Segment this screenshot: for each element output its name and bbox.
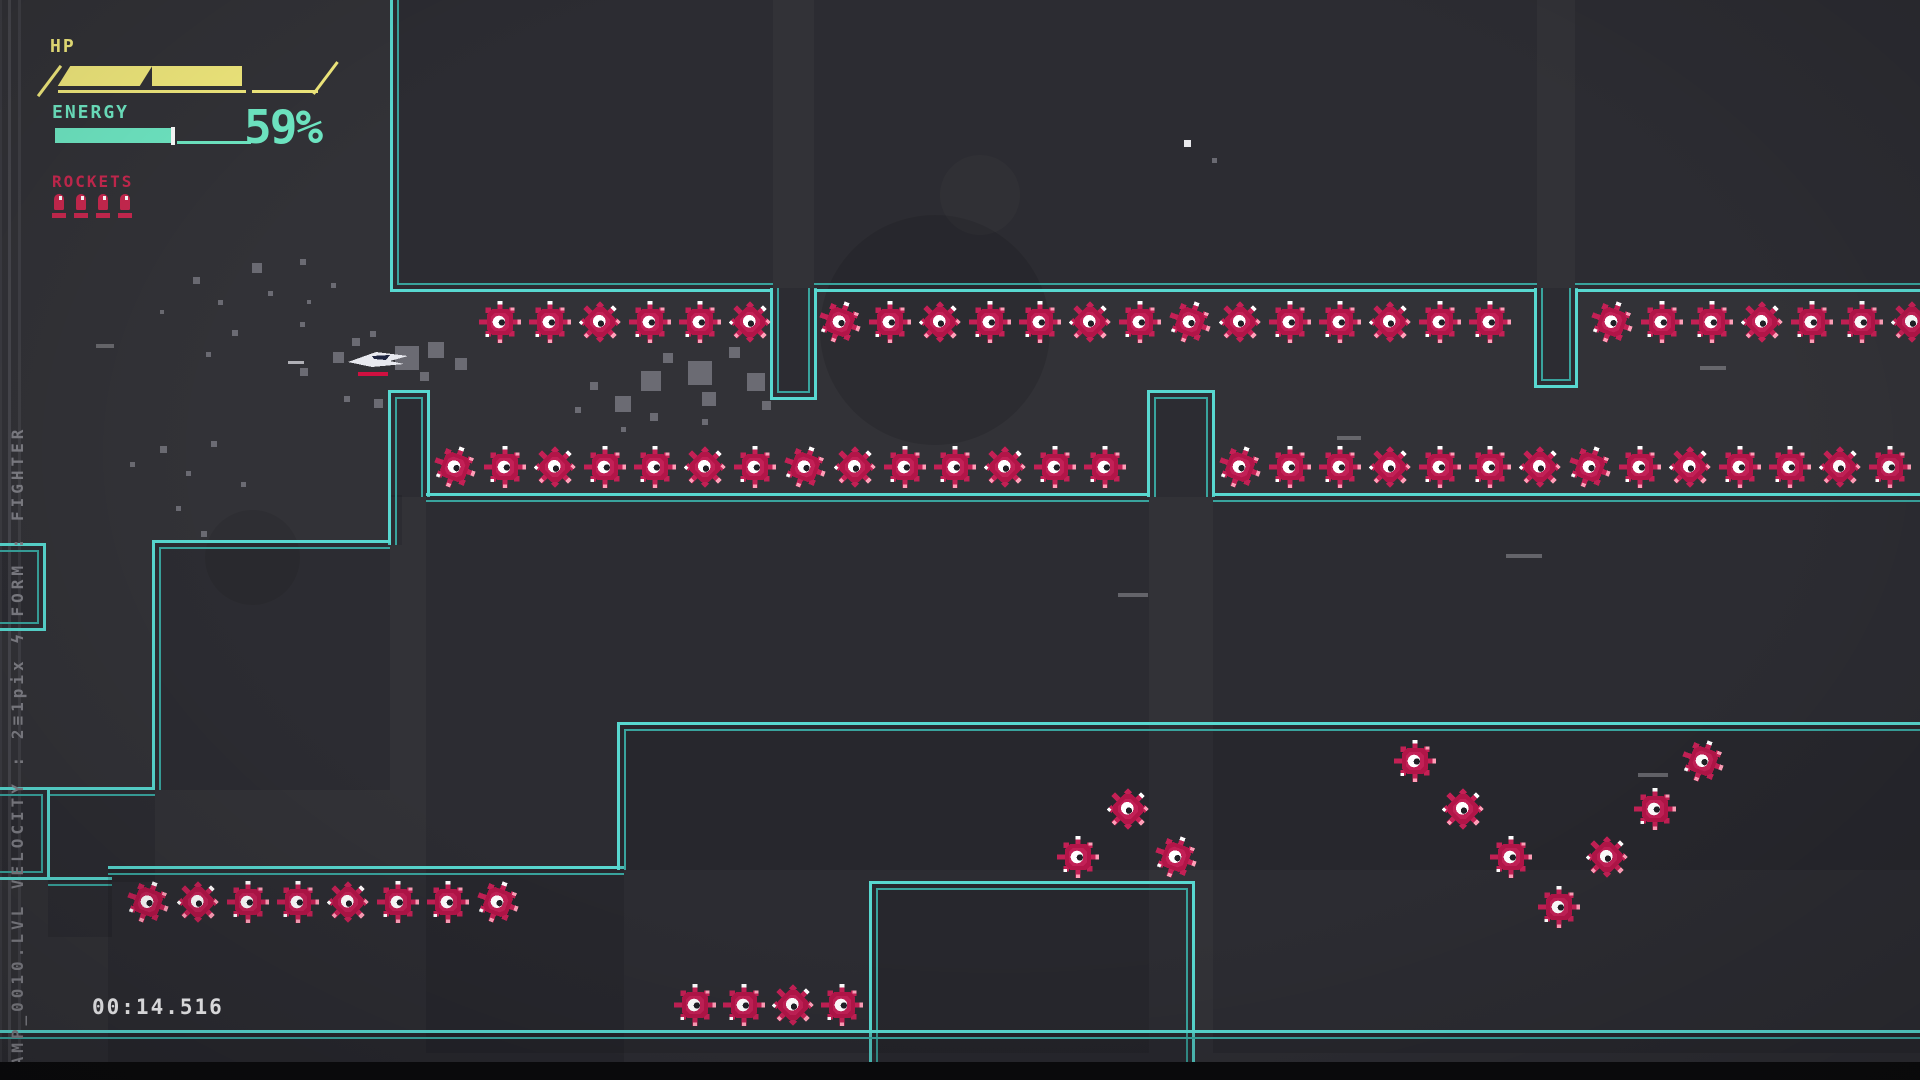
enemy-mine bbox=[1691, 301, 1733, 343]
elapsed-timer: 00:14.516 bbox=[92, 995, 224, 1019]
enemy-mine bbox=[525, 437, 584, 496]
enemy-mine bbox=[1119, 301, 1161, 343]
enemy-mine bbox=[1419, 446, 1461, 488]
enemy-mine bbox=[1419, 301, 1461, 343]
level-status-text: CAMP_0010.LVL VELOCITY : 2≡1pix ϟ FORM :… bbox=[8, 248, 30, 1080]
enemy-mine bbox=[1791, 301, 1833, 343]
wall-segment bbox=[390, 0, 773, 292]
enemy-mine bbox=[1641, 301, 1683, 343]
enemy-mine bbox=[1634, 788, 1676, 830]
enemy-mine bbox=[1490, 836, 1532, 878]
enemy-mine bbox=[1019, 301, 1061, 343]
game-viewport[interactable]: HP ENERGY 59% ROCKETS CAMP_0010.LVL VELO… bbox=[0, 0, 1920, 1080]
bottom-letterbox-bar bbox=[0, 1062, 1920, 1080]
enemy-mine bbox=[934, 446, 976, 488]
wall-segment bbox=[770, 288, 817, 400]
enemy-mine bbox=[1034, 446, 1076, 488]
energy-percent-value: 59% bbox=[244, 100, 321, 154]
hp-label: HP bbox=[50, 36, 76, 57]
rocket-icon bbox=[52, 194, 66, 222]
enemy-mine bbox=[1060, 292, 1119, 351]
wall-segment bbox=[1534, 288, 1578, 388]
enemy-mine bbox=[377, 881, 419, 923]
enemy-mine bbox=[1213, 440, 1267, 494]
enemy-mine bbox=[813, 295, 867, 349]
enemy-mine bbox=[479, 301, 521, 343]
wall-segment bbox=[48, 877, 112, 937]
rocket-icon bbox=[96, 194, 110, 222]
enemy-mine bbox=[1360, 292, 1419, 351]
enemy-mine bbox=[570, 292, 629, 351]
enemy-mine bbox=[1319, 301, 1361, 343]
enemy-mine bbox=[1057, 836, 1099, 878]
enemy-mine bbox=[1563, 440, 1617, 494]
enemy-mine bbox=[1732, 292, 1791, 351]
enemy-mine bbox=[675, 437, 734, 496]
enemy-mine bbox=[969, 301, 1011, 343]
enemy-mine bbox=[1769, 446, 1811, 488]
enemy-mine bbox=[1619, 446, 1661, 488]
enemy-mine bbox=[1810, 437, 1869, 496]
wall-segment bbox=[1147, 390, 1215, 497]
enemy-mine bbox=[484, 446, 526, 488]
enemy-mine bbox=[825, 437, 884, 496]
enemy-mine bbox=[1660, 437, 1719, 496]
enemy-mine bbox=[1841, 301, 1883, 343]
enemy-mine bbox=[884, 446, 926, 488]
ship-trail bbox=[288, 361, 304, 364]
wall-segment bbox=[388, 390, 430, 497]
enemy-mine bbox=[778, 440, 832, 494]
wall-segment bbox=[814, 0, 1537, 292]
enemy-mine bbox=[674, 984, 716, 1026]
enemy-mine bbox=[1163, 295, 1217, 349]
player-ship-icon bbox=[346, 344, 410, 384]
wall-segment bbox=[1575, 0, 1920, 292]
enemy-mine bbox=[634, 446, 676, 488]
enemy-mine bbox=[1269, 301, 1311, 343]
enemy-mine bbox=[734, 446, 776, 488]
enemy-mine bbox=[1510, 437, 1569, 496]
enemy-mine bbox=[227, 881, 269, 923]
enemy-mine bbox=[1319, 446, 1361, 488]
enemy-mine bbox=[277, 881, 319, 923]
enemy-mine bbox=[629, 301, 671, 343]
rocket-icon bbox=[74, 194, 88, 222]
enemy-mine bbox=[529, 301, 571, 343]
enemy-mine bbox=[427, 881, 469, 923]
enemy-mine bbox=[1469, 301, 1511, 343]
rocket-ammo-icons bbox=[52, 194, 140, 226]
enemy-mine bbox=[679, 301, 721, 343]
enemy-mine bbox=[1869, 446, 1911, 488]
enemy-mine bbox=[1585, 295, 1639, 349]
rockets-label: ROCKETS bbox=[52, 172, 133, 191]
energy-label: ENERGY bbox=[52, 102, 129, 123]
enemy-mine bbox=[975, 437, 1034, 496]
enemy-mine bbox=[1360, 437, 1419, 496]
rocket-icon bbox=[118, 194, 132, 222]
enemy-mine bbox=[821, 984, 863, 1026]
enemy-mine bbox=[723, 984, 765, 1026]
enemy-mine bbox=[1719, 446, 1761, 488]
enemy-mine bbox=[1210, 292, 1269, 351]
enemy-mine bbox=[428, 440, 482, 494]
enemy-mine bbox=[1394, 740, 1436, 782]
enemy-mine bbox=[1882, 292, 1920, 351]
enemy-mine bbox=[1469, 446, 1511, 488]
wall-segment bbox=[388, 495, 402, 545]
enemy-mine bbox=[869, 301, 911, 343]
enemy-mine bbox=[1269, 446, 1311, 488]
enemy-mine bbox=[1538, 886, 1580, 928]
wall-segment bbox=[152, 540, 390, 790]
enemy-mine bbox=[1084, 446, 1126, 488]
wall-segment bbox=[617, 722, 1920, 870]
enemy-mine bbox=[910, 292, 969, 351]
enemy-mine bbox=[584, 446, 626, 488]
